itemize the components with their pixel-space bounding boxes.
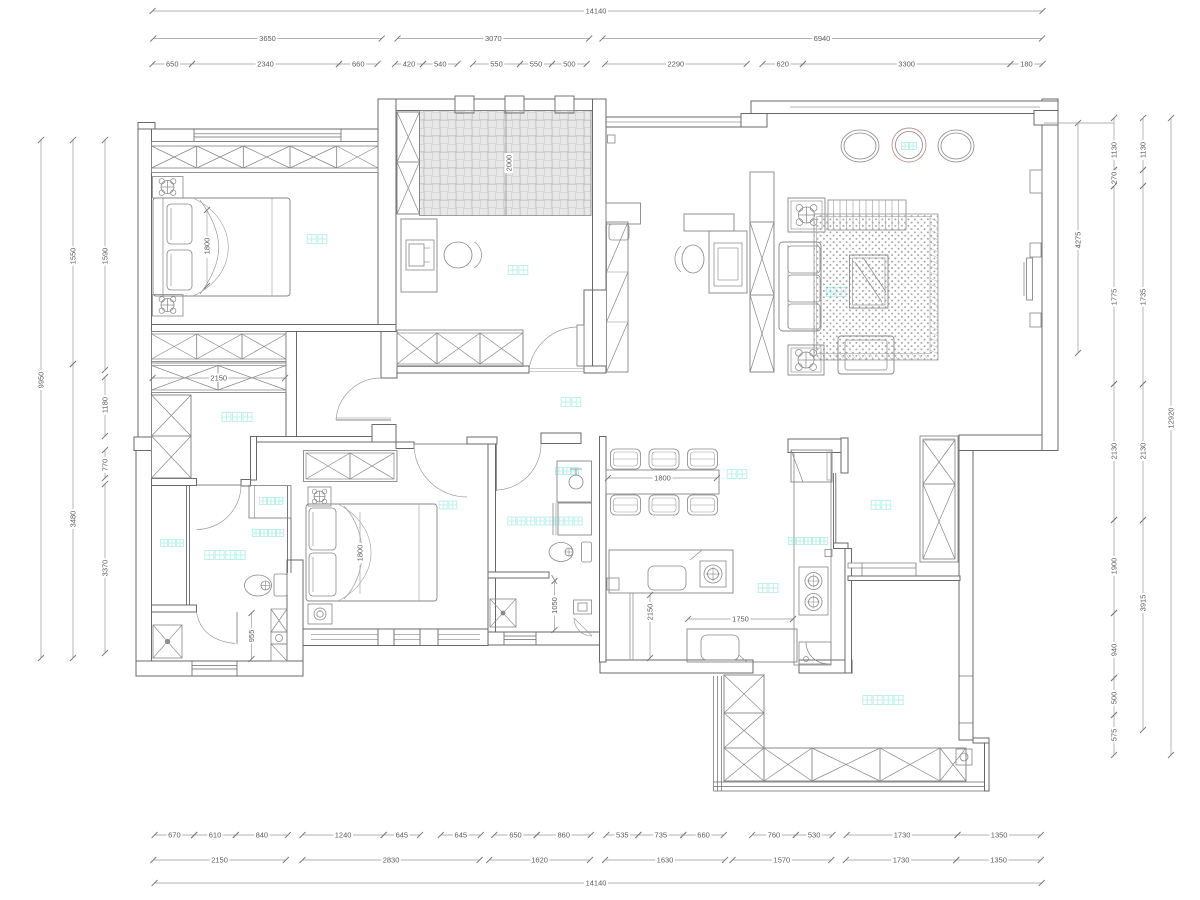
svg-text:1800: 1800	[654, 474, 671, 483]
svg-text:1620: 1620	[531, 856, 548, 865]
svg-text:955: 955	[247, 630, 256, 643]
svg-text:940: 940	[1110, 644, 1119, 657]
svg-text:2000: 2000	[505, 155, 514, 172]
svg-text:840: 840	[256, 831, 269, 840]
svg-text:650: 650	[509, 831, 522, 840]
svg-text:645: 645	[396, 831, 409, 840]
svg-text:3370: 3370	[101, 560, 110, 577]
svg-text:1730: 1730	[894, 831, 911, 840]
svg-text:1750: 1750	[732, 615, 749, 624]
svg-text:660: 660	[352, 60, 365, 69]
svg-text:860: 860	[557, 831, 570, 840]
svg-text:610: 610	[209, 831, 222, 840]
svg-text:550: 550	[530, 60, 543, 69]
svg-text:12920: 12920	[1167, 408, 1176, 429]
svg-text:14140: 14140	[586, 7, 607, 16]
svg-text:770: 770	[101, 459, 110, 472]
svg-text:1590: 1590	[101, 248, 110, 265]
svg-text:2130: 2130	[1110, 443, 1119, 460]
svg-text:3480: 3480	[69, 511, 78, 528]
svg-text:4275: 4275	[1074, 232, 1083, 249]
svg-text:3070: 3070	[485, 34, 502, 43]
svg-text:2150: 2150	[211, 856, 228, 865]
svg-text:1775: 1775	[1110, 289, 1119, 306]
svg-text:735: 735	[655, 831, 668, 840]
svg-text:1630: 1630	[657, 856, 674, 865]
svg-text:540: 540	[434, 60, 447, 69]
svg-text:645: 645	[455, 831, 468, 840]
svg-text:3650: 3650	[259, 34, 276, 43]
svg-text:1800: 1800	[203, 238, 212, 255]
svg-text:2340: 2340	[257, 60, 274, 69]
svg-text:270: 270	[1110, 172, 1119, 185]
svg-text:2830: 2830	[383, 856, 400, 865]
svg-text:180: 180	[1020, 60, 1033, 69]
svg-text:2150: 2150	[646, 604, 655, 621]
svg-text:1570: 1570	[774, 856, 791, 865]
svg-text:9950: 9950	[37, 372, 46, 389]
svg-text:14140: 14140	[586, 879, 607, 888]
svg-text:1735: 1735	[1139, 289, 1148, 306]
svg-text:760: 760	[768, 831, 781, 840]
svg-text:500: 500	[563, 60, 576, 69]
svg-text:650: 650	[166, 60, 179, 69]
svg-text:1730: 1730	[893, 856, 910, 865]
svg-text:2290: 2290	[668, 60, 685, 69]
svg-text:500: 500	[1110, 692, 1119, 705]
svg-text:2150: 2150	[210, 374, 227, 383]
svg-text:1240: 1240	[335, 831, 352, 840]
svg-text:1180: 1180	[101, 397, 110, 413]
svg-text:420: 420	[403, 60, 416, 69]
svg-text:3300: 3300	[898, 60, 915, 69]
svg-text:670: 670	[168, 831, 181, 840]
svg-text:660: 660	[697, 831, 710, 840]
svg-text:550: 550	[490, 60, 503, 69]
svg-text:535: 535	[616, 831, 629, 840]
svg-text:1800: 1800	[356, 545, 365, 562]
svg-text:1050: 1050	[550, 597, 559, 614]
svg-text:575: 575	[1110, 729, 1119, 742]
svg-text:1900: 1900	[1110, 558, 1119, 575]
svg-text:2130: 2130	[1139, 443, 1148, 460]
svg-text:6940: 6940	[814, 34, 831, 43]
svg-text:620: 620	[776, 60, 789, 69]
svg-text:1350: 1350	[991, 831, 1008, 840]
svg-text:3915: 3915	[1139, 595, 1148, 612]
svg-text:1550: 1550	[69, 248, 78, 265]
svg-text:530: 530	[808, 831, 821, 840]
svg-text:1350: 1350	[990, 856, 1007, 865]
svg-text:1130: 1130	[1110, 142, 1119, 158]
svg-text:1130: 1130	[1139, 142, 1148, 158]
